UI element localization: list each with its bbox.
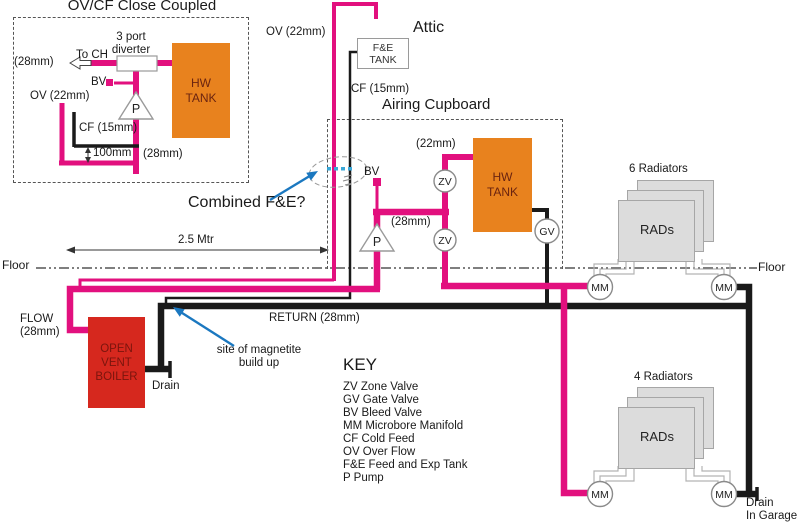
dim25-label: 2.5 Mtr: [178, 234, 214, 247]
mm-6rads-flow-label: MM: [591, 282, 609, 294]
flow-pipes: [70, 4, 590, 493]
magnetite-label: site of magnetite build up: [203, 344, 315, 370]
drain-garage-label: Drain In Garage: [746, 497, 797, 522]
zone-valve-top-label: ZV: [438, 176, 451, 188]
fe-tank-line1: F&E: [373, 42, 393, 54]
boiler-line3: BOILER: [95, 370, 137, 384]
magnetite-line1: site of magnetite: [203, 344, 315, 357]
inset-hw-tank: HW TANK: [172, 43, 230, 138]
drain-garage-line2: In Garage: [746, 510, 797, 523]
fe-tank: F&E TANK: [357, 38, 409, 69]
dim-25mtr: [66, 247, 329, 254]
inset-diverter-line1: 3 port: [105, 31, 157, 44]
rads6-label: RADs: [640, 222, 674, 237]
key-item-ov: OV Over Flow: [343, 446, 415, 459]
combined-fe-label: Combined F&E?: [188, 196, 305, 209]
ov-main-label: OV (22mm): [266, 26, 325, 39]
hw-tank-line1: HW: [493, 170, 513, 185]
inset-bleed-valve: [106, 79, 113, 86]
four-radiators-label: 4 Radiators: [634, 371, 693, 384]
inset-ov-label: OV (22mm): [30, 90, 89, 103]
open-vent-boiler: OPEN VENT BOILER: [88, 317, 145, 408]
key-item-bv: BV Bleed Valve: [343, 407, 422, 420]
combined-fe-arrowhead: [306, 167, 320, 180]
drain-garage-line1: Drain: [746, 497, 797, 510]
inset-hw-tank-line2: TANK: [185, 91, 216, 106]
inset-dim100-label: 100mm: [93, 147, 131, 160]
fe-tank-line2: TANK: [369, 54, 396, 66]
zone-valve-bottom-label: ZV: [438, 235, 451, 247]
flow-line2: (28mm): [20, 326, 60, 339]
dim-arrowhead-right: [320, 247, 329, 254]
dim-100mm-arrowhead-top: [85, 147, 91, 153]
boiler-line2: VENT: [101, 356, 132, 370]
key-item-zv: ZV Zone Valve: [343, 381, 418, 394]
return-label: RETURN (28mm): [269, 312, 360, 325]
mm-6rads-return-label: MM: [715, 282, 733, 294]
six-radiators-label: 6 Radiators: [629, 163, 688, 176]
size22-label: (22mm): [416, 138, 456, 151]
inset-pump-label: P: [132, 102, 140, 116]
inset-cf-label: CF (15mm): [79, 122, 137, 135]
key-item-p: P Pump: [343, 472, 384, 485]
heating-system-diagram: ZV ZV GV MM MM MM MM P P OV/CF Close Cou…: [0, 0, 800, 523]
key-item-fe: F&E Feed and Exp Tank: [343, 459, 467, 472]
gate-valve-label: GV: [539, 226, 554, 238]
boiler-line1: OPEN: [100, 342, 133, 356]
inset-bv-label: BV: [91, 76, 106, 89]
magnetite-line2: build up: [203, 357, 315, 370]
rads4-flow-pipe: [564, 283, 590, 493]
inset-diverter-line2: diverter: [105, 44, 157, 57]
inset-size-right-label: (28mm): [143, 148, 183, 161]
hw-tank-line2: TANK: [487, 185, 518, 200]
inset-to-ch-label: To CH: [76, 49, 108, 62]
drain-label: Drain: [152, 380, 179, 393]
return-riser-pipe: [735, 287, 749, 494]
pump-label: P: [373, 235, 381, 249]
key-item-cf: CF Cold Feed: [343, 433, 415, 446]
three-port-diverter: [117, 56, 157, 71]
flow-line1: FLOW: [20, 313, 60, 326]
floor-right-label: Floor: [758, 261, 785, 274]
mm-4rads-flow-label: MM: [591, 489, 609, 501]
flow-label: FLOW (28mm): [20, 313, 60, 339]
dim-arrowhead-left: [66, 247, 75, 254]
key-title: KEY: [343, 358, 377, 371]
bleed-valve-main: [373, 178, 381, 186]
water-level-dots: [327, 167, 352, 171]
inset-hw-tank-line1: HW: [191, 76, 211, 91]
size28-label: (28mm): [391, 216, 431, 229]
key-item-mm: MM Microbore Manifold: [343, 420, 463, 433]
magnetite-arrow: [179, 311, 234, 346]
cf-main-label: CF (15mm): [351, 83, 409, 96]
key-item-gv: GV Gate Valve: [343, 394, 419, 407]
inset-diverter-label: 3 port diverter: [105, 31, 157, 57]
inset-title: OV/CF Close Coupled: [36, 0, 248, 12]
inset-size-left-label: (28mm): [14, 56, 54, 69]
bv-main-label: BV: [364, 166, 379, 179]
hw-tank: HW TANK: [473, 138, 532, 232]
floor-left-label: Floor: [2, 259, 29, 272]
rads4-label: RADs: [640, 429, 674, 444]
mm-4rads-return-label: MM: [715, 489, 733, 501]
attic-label: Attic: [413, 21, 444, 34]
airing-cupboard-label: Airing Cupboard: [382, 98, 490, 111]
